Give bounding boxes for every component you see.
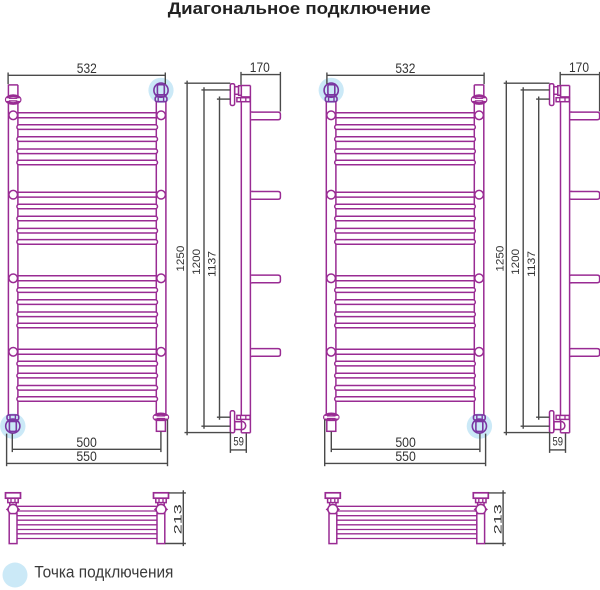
svg-text:59: 59 bbox=[233, 435, 244, 449]
svg-text:550: 550 bbox=[76, 449, 97, 465]
svg-text:1200: 1200 bbox=[191, 249, 203, 275]
svg-text:213: 213 bbox=[173, 504, 185, 534]
svg-text:1250: 1250 bbox=[494, 246, 506, 272]
svg-text:59: 59 bbox=[553, 435, 564, 449]
svg-text:170: 170 bbox=[569, 60, 589, 76]
svg-text:1137: 1137 bbox=[207, 251, 219, 277]
svg-text:1250: 1250 bbox=[175, 246, 187, 272]
svg-text:Диагональное подключение: Диагональное подключение bbox=[168, 0, 431, 18]
svg-text:1200: 1200 bbox=[510, 249, 522, 275]
svg-text:Точка подключения: Точка подключения bbox=[34, 564, 173, 582]
svg-text:532: 532 bbox=[77, 61, 97, 77]
svg-text:170: 170 bbox=[250, 60, 270, 76]
svg-text:213: 213 bbox=[492, 504, 504, 534]
svg-text:532: 532 bbox=[395, 61, 415, 77]
svg-text:1137: 1137 bbox=[526, 251, 538, 277]
svg-text:550: 550 bbox=[395, 449, 416, 465]
